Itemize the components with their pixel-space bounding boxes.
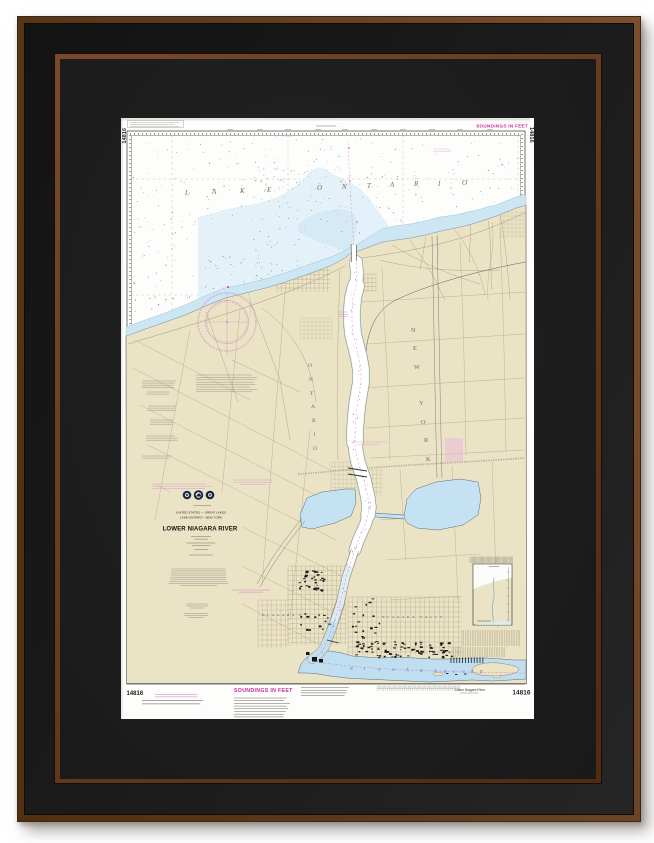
svg-text:O: O — [421, 419, 426, 426]
svg-text:SOUNDINGS IN FEET: SOUNDINGS IN FEET — [234, 688, 293, 694]
svg-text:A: A — [211, 188, 217, 196]
svg-text:R: R — [479, 669, 483, 674]
svg-text:A: A — [405, 667, 409, 672]
svg-text:L: L — [184, 189, 189, 197]
svg-text:Lower Niagara River: Lower Niagara River — [455, 688, 486, 692]
svg-text:N: N — [341, 183, 347, 191]
svg-text:A: A — [433, 668, 437, 673]
svg-text:O: O — [462, 179, 467, 187]
svg-text:E: E — [266, 186, 272, 194]
svg-text:K: K — [239, 187, 245, 195]
svg-text:K: K — [426, 456, 431, 463]
svg-text:L: L — [430, 615, 432, 619]
svg-text:R: R — [413, 180, 419, 188]
svg-text:W: W — [414, 364, 420, 371]
svg-text:F: F — [299, 613, 301, 617]
svg-text:14816: 14816 — [528, 127, 534, 143]
svg-text:O: O — [313, 446, 317, 452]
svg-text:UNITED STATES — GREAT LAKES: UNITED STATES — GREAT LAKES — [176, 511, 226, 515]
svg-text:A: A — [389, 181, 395, 189]
svg-text:N: N — [411, 327, 416, 334]
svg-text:14816: 14816 — [127, 691, 144, 697]
svg-text:14816: 14816 — [512, 690, 530, 697]
svg-text:A: A — [377, 667, 381, 672]
svg-text:F: F — [420, 615, 422, 619]
svg-text:O: O — [317, 184, 322, 192]
svg-text:V: V — [462, 669, 465, 674]
svg-text:Y: Y — [419, 400, 424, 407]
svg-text:N: N — [349, 666, 353, 671]
svg-text:A: A — [311, 404, 315, 410]
svg-text:S: S — [440, 615, 442, 619]
svg-text:I: I — [314, 432, 316, 438]
svg-text:L: L — [435, 615, 437, 619]
svg-text:E: E — [413, 345, 417, 352]
svg-text:R: R — [312, 418, 316, 424]
svg-text:LOWER NIAGARA RIVER: LOWER NIAGARA RIVER — [163, 526, 238, 533]
svg-text:T: T — [310, 391, 314, 397]
svg-text:E: E — [470, 669, 474, 674]
svg-text:N: N — [309, 377, 313, 383]
svg-text:O: O — [308, 363, 312, 369]
svg-text:LAKE ONTARIO - NEW YORK: LAKE ONTARIO - NEW YORK — [180, 515, 223, 519]
svg-text:SOUNDINGS IN FEET: SOUNDINGS IN FEET — [476, 124, 528, 129]
